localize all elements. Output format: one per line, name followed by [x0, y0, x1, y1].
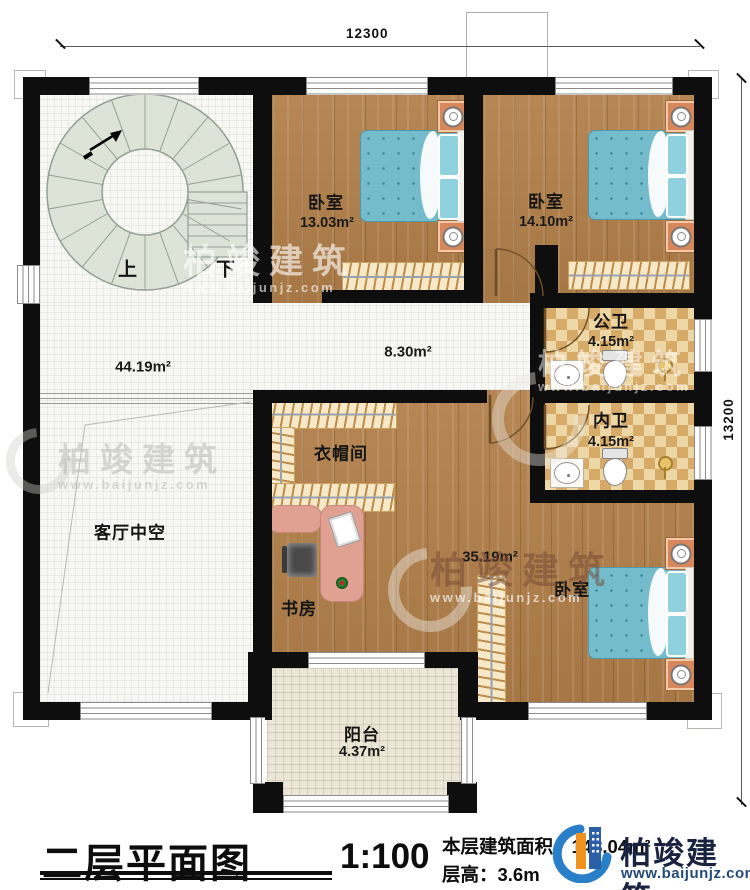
window	[694, 319, 712, 372]
shower-icon	[658, 358, 673, 373]
sink	[550, 360, 584, 390]
lamp-icon	[671, 106, 692, 127]
nightstand	[666, 221, 696, 252]
wardrobe	[568, 261, 690, 290]
lamp-icon	[443, 226, 464, 247]
balcony-railing	[283, 795, 449, 813]
toilet	[600, 350, 628, 388]
stair-down-label: 下	[216, 255, 236, 282]
basin-icon	[554, 364, 580, 386]
wall	[694, 95, 712, 319]
sink	[550, 458, 584, 488]
dimension-line-right	[741, 78, 742, 805]
dimension-tick	[55, 39, 66, 50]
balcony-sliding-door	[308, 652, 425, 668]
wall	[253, 95, 272, 303]
inner-bath-area: 4.15m²	[588, 434, 634, 450]
stair-up-label: 上	[118, 255, 138, 282]
balcony-railing	[250, 717, 265, 784]
brand-site: www.baijunjz.com	[621, 865, 750, 882]
wall	[23, 95, 40, 265]
corridor-area: 8.30m²	[384, 344, 432, 361]
wall	[23, 702, 80, 720]
dimension-tick	[694, 39, 705, 50]
desk	[267, 505, 322, 533]
wall	[23, 77, 89, 95]
title-block: 二层平面图 1:100 本层建筑面积：148.04m² 层高：3.6m 柏竣建筑…	[0, 815, 750, 890]
drawing-scale: 1:100	[340, 837, 430, 877]
brand-logo-icon	[552, 823, 616, 883]
dimension-top-value: 12300	[346, 26, 389, 41]
balcony-label: 阳台	[344, 721, 380, 746]
lamp-icon	[671, 664, 692, 685]
living-void-label: 客厅中空	[94, 519, 166, 544]
corridor-floor	[40, 303, 535, 390]
public-bath-area: 4.15m²	[588, 334, 634, 350]
basin-icon	[554, 462, 580, 484]
floor-height-text: 层高：3.6m	[442, 861, 540, 887]
floor-plan: 12300 13200	[0, 0, 750, 890]
wardrobe	[267, 400, 397, 429]
pillow	[666, 134, 688, 176]
lamp-icon	[671, 543, 692, 564]
dimension-right-value: 13200	[721, 398, 736, 441]
window	[306, 77, 428, 95]
public-bath-label: 公卫	[593, 308, 629, 333]
dimension-line-top	[60, 46, 700, 47]
pillow	[666, 571, 688, 614]
wall	[197, 77, 306, 95]
wall	[671, 77, 712, 95]
title-underline	[40, 878, 332, 880]
page-title: 二层平面图	[42, 831, 252, 889]
pillow	[438, 134, 460, 177]
window	[528, 702, 647, 720]
balcony-post	[253, 782, 283, 813]
nightstand	[666, 659, 696, 690]
bedroom2-area: 14.10m²	[519, 214, 573, 230]
pillow	[666, 176, 688, 218]
window	[555, 77, 673, 95]
bedroom1-area: 13.03m²	[300, 215, 354, 231]
bedroom1-label: 卧室	[308, 189, 344, 214]
wall	[23, 302, 40, 720]
toilet	[600, 448, 628, 486]
shower-icon	[658, 456, 673, 471]
chair	[287, 543, 317, 577]
wall	[530, 390, 712, 403]
wall	[545, 293, 694, 308]
living-void-floor	[40, 390, 253, 702]
wall	[645, 702, 712, 720]
inner-bath-label: 内卫	[593, 407, 629, 432]
cloakroom-label: 衣帽间	[314, 440, 368, 465]
window	[694, 426, 712, 480]
balcony-post	[447, 782, 477, 813]
wall	[322, 290, 464, 303]
lamp-icon	[671, 226, 692, 247]
pillow	[438, 177, 460, 220]
balcony-railing	[461, 717, 476, 784]
wall	[426, 77, 555, 95]
wall	[253, 390, 487, 403]
wall	[458, 652, 478, 717]
nightstand	[666, 101, 696, 132]
plant-icon	[336, 577, 348, 589]
master-area-label: 35.19m²	[462, 549, 518, 566]
nightstand	[666, 538, 696, 569]
stair-hall-area: 44.19m²	[115, 359, 171, 376]
wardrobe	[477, 575, 506, 704]
lamp-icon	[443, 106, 464, 127]
wall	[464, 95, 483, 303]
window	[89, 77, 199, 95]
study-label: 书房	[281, 595, 317, 620]
bedroom2-label: 卧室	[528, 188, 564, 213]
balcony-area: 4.37m²	[339, 744, 385, 760]
wall	[694, 478, 712, 720]
wall	[248, 668, 267, 717]
master-bedroom-label: 卧室	[554, 576, 590, 601]
title-underline	[40, 871, 332, 875]
window	[17, 265, 40, 304]
wardrobe	[342, 262, 465, 292]
pillow	[666, 614, 688, 657]
window	[80, 702, 212, 720]
wall	[530, 490, 712, 503]
